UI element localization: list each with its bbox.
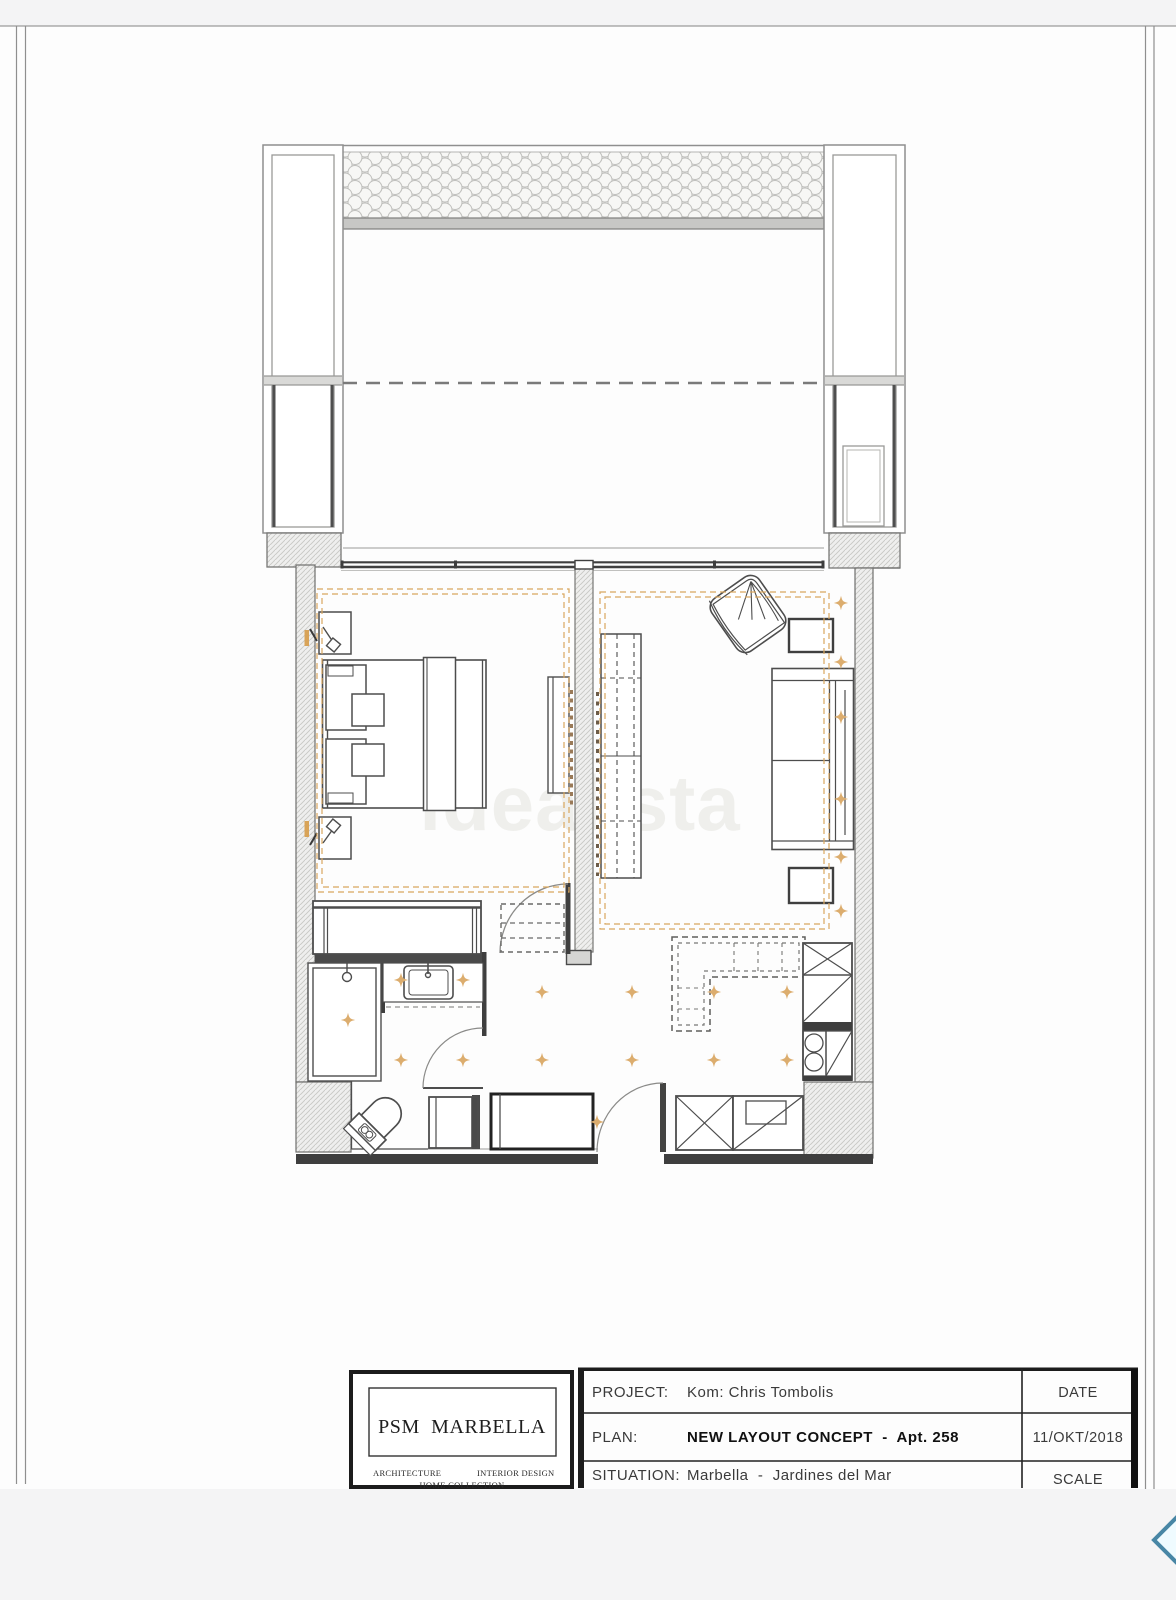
svg-text:SCALE: SCALE xyxy=(1053,1472,1103,1488)
svg-text:DATE: DATE xyxy=(1058,1385,1098,1401)
svg-text:PSM MARBELLA: PSM MARBELLA xyxy=(378,1416,546,1438)
svg-text:INTERIOR DESIGN: INTERIOR DESIGN xyxy=(477,1468,554,1478)
svg-text:NEW LAYOUT CONCEPT - Apt. 25: NEW LAYOUT CONCEPT - Apt. 258 xyxy=(687,1429,959,1446)
svg-text:Kom: Chris Tombolis: Kom: Chris Tombolis xyxy=(687,1384,834,1401)
svg-text:HOME COLLECTION: HOME COLLECTION xyxy=(419,1480,504,1490)
svg-text:PROJECT:: PROJECT: xyxy=(592,1384,669,1401)
svg-text:Marbella - Jardines del Mar: Marbella - Jardines del Mar xyxy=(687,1467,892,1484)
svg-text:ARCHITECTURE: ARCHITECTURE xyxy=(373,1468,441,1478)
svg-text:PLAN:: PLAN: xyxy=(592,1429,638,1446)
svg-text:11/OKT/2018: 11/OKT/2018 xyxy=(1033,1430,1124,1446)
svg-text:SITUATION:: SITUATION: xyxy=(592,1467,680,1484)
